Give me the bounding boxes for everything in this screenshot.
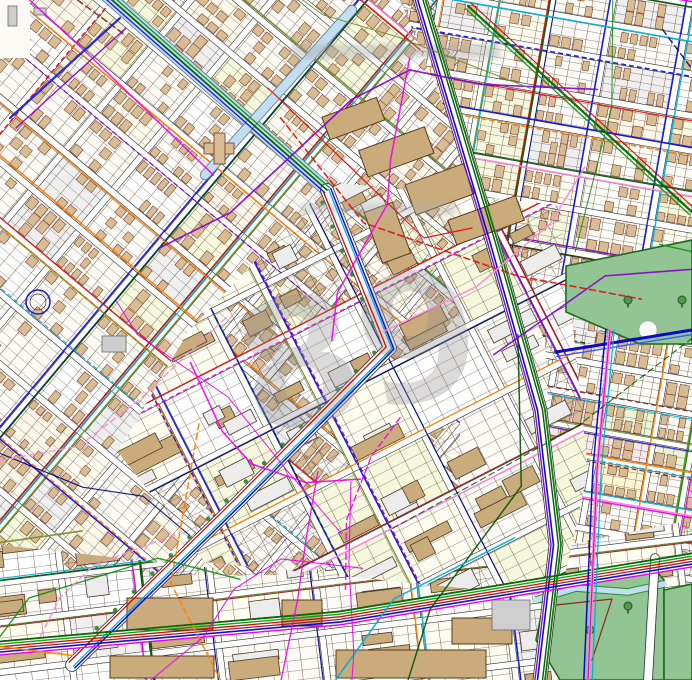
park-south-park-strip bbox=[664, 584, 692, 680]
map-viewport[interactable]: 89 bbox=[0, 0, 692, 680]
city-utility-map[interactable]: 89 bbox=[0, 0, 692, 680]
watermark-smudge bbox=[300, 203, 455, 215]
watermark-smudge bbox=[290, 44, 500, 59]
